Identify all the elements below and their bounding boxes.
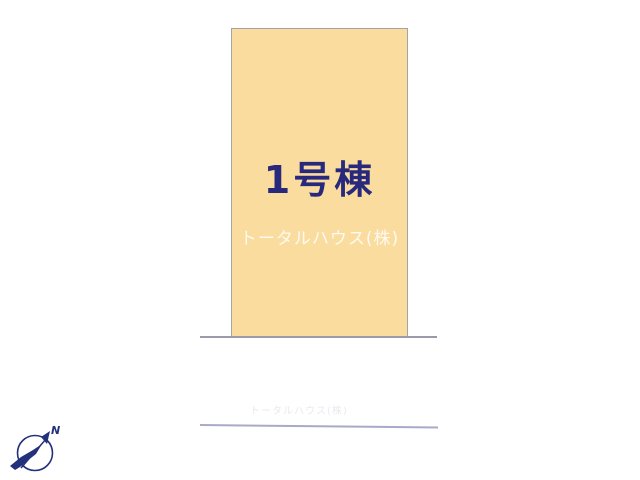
- site-plan-canvas: 1号棟 トータルハウス(株) トータルハウス(株) N: [0, 0, 640, 480]
- compass-n-label: N: [51, 424, 60, 437]
- boundary-line-upper: [200, 336, 437, 338]
- compass-bird-needle: [10, 444, 42, 470]
- compass-north-icon: N: [8, 420, 66, 478]
- lot-label: 1号棟: [232, 160, 407, 202]
- company-watermark: トータルハウス(株): [232, 229, 407, 249]
- faint-company-watermark: トータルハウス(株): [250, 402, 410, 417]
- lot-parcel-1: 1号棟 トータルハウス(株): [231, 28, 408, 337]
- boundary-line-lower: [200, 424, 438, 428]
